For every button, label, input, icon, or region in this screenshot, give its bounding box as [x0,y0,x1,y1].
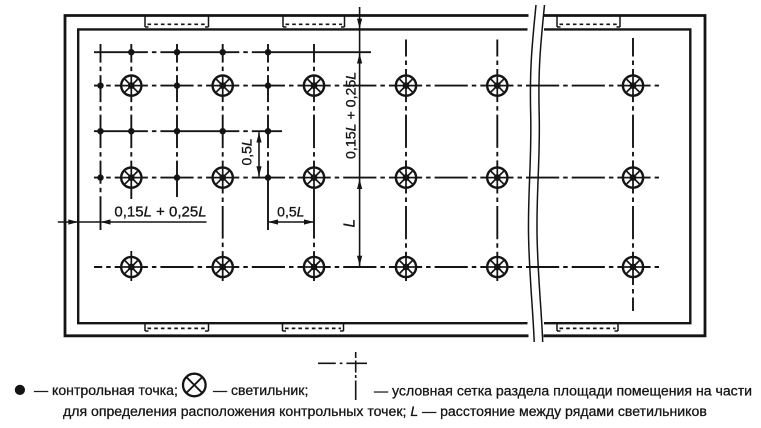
svg-text:L: L [342,219,359,228]
svg-text:— контрольная точка;: — контрольная точка; [34,382,178,398]
svg-text:0,5L: 0,5L [277,204,304,220]
svg-text:0,15L + 0,25L: 0,15L + 0,25L [114,203,206,220]
svg-text:0,15L + 0,25L: 0,15L + 0,25L [344,72,360,159]
svg-text:— светильник;: — светильник; [213,382,308,398]
svg-text:— условная сетка раздела площа: — условная сетка раздела площади помещен… [374,382,752,398]
svg-text:0,5L: 0,5L [239,138,255,165]
svg-text:для определения расположения к: для определения расположения контрольных… [63,403,707,419]
